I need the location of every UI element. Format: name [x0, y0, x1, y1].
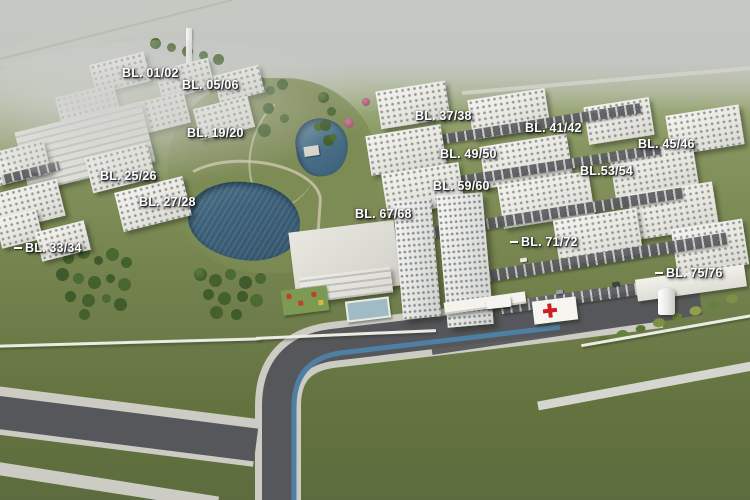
block-label-bl-01-02: BL. 01/02	[122, 66, 179, 80]
block-label-bl-67-68: BL. 67/68	[355, 207, 412, 221]
block-label-bl-45-46: BL. 45/46	[638, 137, 695, 151]
label-layer: BL. 01/02BL. 05/06BL. 19/20BL. 25/26BL. …	[0, 0, 750, 500]
block-label-bl-49-50: BL. 49/50	[440, 147, 497, 161]
block-label-bl-75-76: BL. 75/76	[655, 266, 723, 280]
block-label-bl-33-34: BL. 33/34	[14, 241, 82, 255]
aerial-masterplan-rendering: BL. 01/02BL. 05/06BL. 19/20BL. 25/26BL. …	[0, 0, 750, 500]
block-label-bl-41-42: BL. 41/42	[525, 121, 582, 135]
block-label-bl-71-72: BL. 71/72	[510, 235, 578, 249]
block-label-bl-05-06: BL. 05/06	[182, 78, 239, 92]
block-label-bl-37-38: BL. 37/38	[415, 109, 472, 123]
block-label-bl-25-26: BL. 25/26	[100, 169, 157, 183]
block-label-bl-27-28: BL. 27/28	[139, 195, 196, 209]
block-label-bl-59-60: BL. 59/60	[433, 179, 490, 193]
block-label-bl-19-20: BL. 19/20	[187, 126, 244, 140]
block-label-bl-53-54: BL.53/54	[580, 164, 633, 178]
